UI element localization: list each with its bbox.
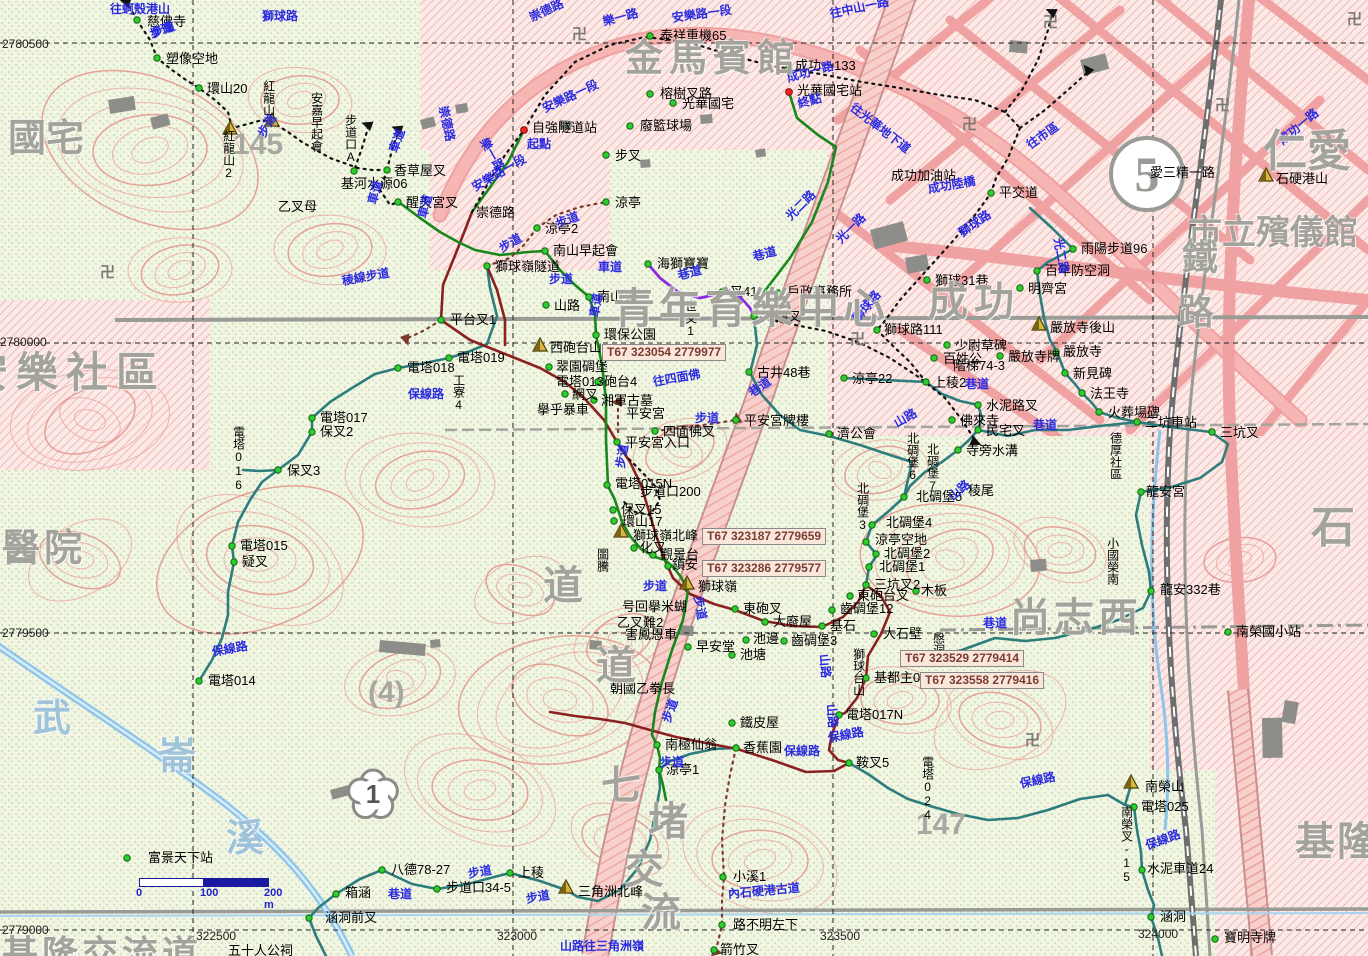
road-label: 樂一路 xyxy=(601,7,639,28)
area-name-label: 交 xyxy=(624,850,664,890)
waypoint-label[interactable]: 涵洞 xyxy=(1160,910,1186,923)
road-label: 巷道 xyxy=(965,378,989,390)
waypoint-label[interactable]: 嚴放寺後山 xyxy=(1050,321,1115,334)
waypoint-label[interactable]: 愛三精一路 xyxy=(1150,166,1215,179)
waypoint-label-vertical[interactable]: 步道口A xyxy=(344,114,357,164)
road-label: 內石硬港古道 xyxy=(727,882,800,900)
waypoint-label[interactable]: 疑叉 xyxy=(242,555,268,568)
road-label: 步道 xyxy=(643,580,667,592)
scale-bar-label: 200 m xyxy=(264,887,282,911)
waypoint-label[interactable]: 嚴放寺 xyxy=(1063,345,1102,358)
waypoint-label[interactable]: 平交道 xyxy=(999,186,1038,199)
road-label: 車道 xyxy=(387,127,406,154)
road-label: 步道 xyxy=(549,273,573,285)
waypoint-label[interactable]: 龍安332巷 xyxy=(1160,583,1221,596)
waypoint-label[interactable]: 網叉 xyxy=(572,388,598,401)
waypoint-label[interactable]: 涵洞前叉 xyxy=(325,911,377,924)
grid-coordinate-label: 2779500 xyxy=(2,627,49,639)
temple-icon: 卍 xyxy=(1043,15,1058,30)
waypoint-label[interactable]: 龍安宮 xyxy=(1146,485,1185,498)
road-label: 步道 xyxy=(692,595,708,621)
waypoint-label-vertical[interactable]: 紅龍山2 xyxy=(222,130,235,180)
waypoint-label[interactable]: 大石壁 xyxy=(883,627,922,640)
waypoint-label-vertical[interactable]: 德厚社區 xyxy=(1109,432,1122,480)
waypoint-label[interactable]: 木板 xyxy=(921,584,947,597)
road-label: 稜線步道 xyxy=(341,267,390,287)
road-label: 安樂路一段 xyxy=(540,78,599,114)
waypoint-label[interactable]: 電塔017 xyxy=(320,411,368,424)
waypoint-label[interactable]: 電塔018 xyxy=(407,361,455,374)
waypoint-label-vertical[interactable]: 安嘉早起會 xyxy=(310,92,323,152)
area-name-label: 青年育樂中心 xyxy=(613,288,889,330)
waypoint-label[interactable]: 自強隧道站 xyxy=(532,121,597,134)
waypoint-label-vertical[interactable]: 北碉堡7 xyxy=(926,443,939,493)
waypoint-label[interactable]: 池塘 xyxy=(740,648,766,661)
waypoint-label[interactable]: 号回擧米蝴 xyxy=(622,600,687,613)
waypoint-label[interactable]: 步叉 xyxy=(615,149,641,162)
waypoint-label[interactable]: 上稜 xyxy=(518,866,544,879)
waypoint-label-vertical[interactable]: 獅球台山 xyxy=(852,648,865,696)
waypoint-label[interactable]: 水泥車道24 xyxy=(1147,862,1213,875)
road-label: 往四面佛 xyxy=(652,368,701,388)
area-name-label: 醫院 xyxy=(2,530,86,568)
waypoint-label[interactable]: 早安堂 xyxy=(696,640,735,653)
waypoint-label[interactable]: 濟公會 xyxy=(837,427,876,440)
waypoint-label[interactable]: 電塔015 xyxy=(240,539,288,552)
waypoint-label[interactable]: 嚴放寺牌 xyxy=(1008,350,1060,363)
road-label: 往蚵殼港山 xyxy=(110,3,170,15)
road-label: 往中山一路 xyxy=(829,0,890,20)
grid-coordinate-label: 322500 xyxy=(196,930,236,942)
area-name-label: 安樂社區 xyxy=(0,352,166,394)
waypoint-label[interactable]: 寶明寺牌 xyxy=(1224,931,1276,944)
waypoint-label[interactable]: 涼亭22 xyxy=(852,372,892,385)
waypoint-label[interactable]: 西砲台山 xyxy=(550,341,602,354)
t67-coordinate-box[interactable]: T67 323054 2779977 xyxy=(602,344,726,361)
road-label: 起點 xyxy=(527,138,551,150)
temple-icon: 卍 xyxy=(100,265,115,280)
waypoint-label[interactable]: 鐵皮屋 xyxy=(740,716,779,729)
area-name-label: 堵 xyxy=(648,802,688,842)
road-label: 崇德路 xyxy=(527,0,565,23)
road-label: 山路 xyxy=(946,478,972,503)
road-label: 巷道 xyxy=(747,375,774,399)
road-label: 步道 xyxy=(256,112,278,139)
scale-bar-label: 100 xyxy=(200,887,218,899)
waypoint-label[interactable]: 富景天下站 xyxy=(148,851,213,864)
waypoint-label[interactable]: 齒碉堡12 xyxy=(840,602,893,615)
waypoint-label[interactable]: 池邊 xyxy=(753,632,779,645)
waypoint-label[interactable]: 北碉堡1 xyxy=(879,560,925,573)
road-label: 保線路 xyxy=(408,388,444,400)
area-name-label: 金馬賓館 xyxy=(625,40,801,78)
waypoint-label[interactable]: 獅球嶺北峰 xyxy=(633,529,698,542)
waypoint-label[interactable]: 涼亭空地 xyxy=(875,533,927,546)
waypoint-label[interactable]: 民宅叉 xyxy=(986,424,1025,437)
waypoint-label[interactable]: 上稜2 xyxy=(933,376,966,389)
waypoint-label[interactable]: 擧乎暴車 xyxy=(537,403,589,416)
waypoint-label[interactable]: 路不明左下 xyxy=(733,918,798,931)
waypoint-label[interactable]: 北碉堡4 xyxy=(886,516,932,529)
waypoint-label[interactable]: 涼亭 xyxy=(615,196,641,209)
area-name-label: 道 xyxy=(596,646,636,686)
road-label: 往市區 xyxy=(1025,120,1061,150)
grid-coordinate-label: 323500 xyxy=(820,930,860,942)
road-label: 車道 xyxy=(588,292,604,318)
road-label: 山路 xyxy=(818,653,832,678)
road-label: 保線路 xyxy=(784,745,820,757)
road-label: 巷道 xyxy=(983,617,1007,629)
waypoint-label-vertical[interactable]: 電塔016 xyxy=(232,426,245,492)
waypoint-label[interactable]: 廢籃球場 xyxy=(640,119,692,132)
road-label: 步道 xyxy=(497,232,524,254)
temple-icon: 卍 xyxy=(962,117,977,132)
road-label: 山路 xyxy=(892,407,919,429)
waypoint-label[interactable]: 五十人公祠 xyxy=(228,944,293,956)
grid-coordinate-label: 324000 xyxy=(1138,928,1178,940)
waypoint-label[interactable]: 百年防空洞 xyxy=(1045,264,1110,277)
waypoint-label[interactable]: 香蕉園 xyxy=(743,741,782,754)
grid-coordinate-label: 2780000 xyxy=(0,336,47,348)
waypoint-label[interactable]: 八德78-27 xyxy=(391,863,450,876)
road-label: 巷道 xyxy=(1033,419,1057,431)
area-name-label: 基隆 xyxy=(1295,822,1368,862)
road-label: 山路 xyxy=(825,703,839,728)
area-name-label: 七 xyxy=(601,766,641,806)
waypoint-label[interactable]: 南榮國小站 xyxy=(1236,625,1301,638)
waypoint-label[interactable]: 水泥路叉 xyxy=(986,399,1038,412)
road-label: 步道 xyxy=(660,756,684,768)
waypoint-label-vertical[interactable]: 北碉堡3 xyxy=(856,482,869,532)
waypoint-label[interactable]: 乙叉母 xyxy=(278,200,317,213)
waypoint-label[interactable]: 翠園碉堡 xyxy=(556,360,608,373)
road-label: 保線路 xyxy=(827,726,865,744)
road-label: 車道 xyxy=(598,261,622,273)
topo-map-canvas[interactable]: 15(4)147145 卍卍卍卍卍卍卍卍慈佛寺塑像空地環山20香草屋叉基河水源0… xyxy=(0,0,1368,956)
waypoint-label-vertical[interactable]: 工寮4 xyxy=(452,374,465,412)
road-label: 巷道 xyxy=(751,245,777,263)
waypoint-label[interactable]: 獅球路111 xyxy=(884,323,943,336)
waypoint-label[interactable]: 法王寺 xyxy=(1090,387,1129,400)
area-name-label: 成功 xyxy=(928,282,1020,322)
temple-icon: 卍 xyxy=(572,27,587,42)
waypoint-label[interactable]: 觀景台 xyxy=(660,548,699,561)
waypoint-label-vertical[interactable]: 電塔024 xyxy=(921,756,934,822)
road-label: 步道 xyxy=(695,412,719,424)
waypoint-label[interactable]: 寺旁水溝 xyxy=(966,444,1018,457)
waypoint-label-vertical[interactable]: 南榮叉-15 xyxy=(1120,806,1133,884)
waypoint-label[interactable]: 大廢屋 xyxy=(773,615,812,628)
waypoint-label[interactable]: 明齊宮 xyxy=(1028,282,1067,295)
road-label: 往光華地下道 xyxy=(848,101,912,155)
road-label: 步道 xyxy=(660,697,679,724)
waypoint-label[interactable]: 南山早起會 xyxy=(553,244,618,257)
waypoint-label[interactable]: 砲台4 xyxy=(604,375,637,388)
waypoint-label-vertical[interactable]: 小國榮南 xyxy=(1106,537,1119,585)
waypoint-label[interactable]: 環山20 xyxy=(207,82,247,95)
waypoint-label[interactable]: 箭竹叉 xyxy=(720,943,759,956)
waypoint-label[interactable]: 平台叉1 xyxy=(450,313,496,326)
road-label: 山路往三角洲嶺 xyxy=(560,940,644,952)
waypoint-label-vertical[interactable]: 紅龍山 xyxy=(262,80,275,116)
waypoint-label[interactable]: 害鳳恩車 xyxy=(625,628,677,641)
road-label: 獅球路 xyxy=(957,208,993,238)
waypoint-label[interactable]: 光華國宅 xyxy=(682,97,734,110)
waypoint-label[interactable]: 平安宮入口 xyxy=(625,436,690,449)
waypoint-label-vertical[interactable]: 北碉堡6 xyxy=(906,432,919,482)
waypoint-label[interactable]: 保叉3 xyxy=(287,464,320,477)
waypoint-label[interactable]: 崇德路 xyxy=(476,206,515,219)
waypoint-label[interactable]: 小溪1 xyxy=(733,870,766,883)
road-label: 獅球路 xyxy=(262,10,298,22)
waypoint-label[interactable]: 鞍叉5 xyxy=(856,756,889,769)
waypoint-label[interactable]: 南極仙翁 xyxy=(665,738,717,751)
temple-icon: 卍 xyxy=(1215,98,1230,113)
area-name-label: 路 xyxy=(1178,294,1214,330)
temple-icon: 卍 xyxy=(850,332,865,347)
t67-coordinate-box[interactable]: T67 323187 2779659 xyxy=(702,528,826,545)
waypoint-label[interactable]: 平安宮 xyxy=(626,407,665,420)
grid-coordinate-label: 2779000 xyxy=(2,924,49,936)
waypoint-label[interactable]: 電塔014 xyxy=(208,674,256,687)
road-label: 步道 xyxy=(467,864,493,880)
area-name-label: 仁愛 xyxy=(1263,130,1351,174)
scale-bar-label: 0 xyxy=(136,887,142,899)
grid-coordinate-label: 323000 xyxy=(497,930,537,942)
road-label: 安樂路一段 xyxy=(671,4,732,24)
waypoint-label[interactable]: 電塔017N xyxy=(846,708,903,721)
area-name-label: 國宅 xyxy=(8,120,84,158)
waypoint-label[interactable]: 電塔025 xyxy=(1141,800,1189,813)
area-name-label: 基隆交流道 xyxy=(2,936,202,956)
map-scale-bar: 0100200 m xyxy=(139,878,267,900)
waypoint-label[interactable]: 齒碉堡3 xyxy=(791,634,837,647)
area-name-label: 鐵 xyxy=(1182,240,1218,276)
waypoint-label[interactable]: 步道口34-5 xyxy=(446,881,511,894)
road-label: 保線路 xyxy=(1144,828,1182,852)
temple-icon: 卍 xyxy=(1025,733,1040,748)
area-name-label: 道 xyxy=(543,566,583,606)
t67-coordinate-box[interactable]: T67 323558 2779416 xyxy=(920,672,1044,689)
area-name-label: 武 xyxy=(33,700,71,738)
road-label: 崇德路 xyxy=(437,105,456,143)
road-label: 保線路 xyxy=(1019,771,1057,790)
waypoint-label[interactable]: 塑像空地 xyxy=(166,52,218,65)
waypoint-label[interactable]: 獅球嶺 xyxy=(698,580,737,593)
waypoint-label[interactable]: 階梯74-3 xyxy=(953,359,1005,372)
waypoint-label[interactable]: 保叉2 xyxy=(320,425,353,438)
waypoint-label[interactable]: 新見碑 xyxy=(1073,367,1112,380)
road-label: 保線路 xyxy=(211,640,249,658)
road-label: 光一路 xyxy=(834,211,868,245)
waypoint-label[interactable]: 三坑叉 xyxy=(1220,426,1259,439)
waypoint-label[interactable]: 三坑車站 xyxy=(1145,416,1197,429)
waypoint-label-vertical[interactable]: 圖騰 xyxy=(596,548,609,572)
road-label: 步道 xyxy=(614,443,630,469)
t67-coordinate-box[interactable]: T67 323529 2779414 xyxy=(900,650,1024,667)
grid-coordinate-label: 2780500 xyxy=(2,38,49,50)
waypoint-label[interactable]: 雨陽步道96 xyxy=(1081,242,1147,255)
scale-bar-segment-white xyxy=(139,878,205,887)
waypoint-label[interactable]: 平安宮牌樓 xyxy=(744,414,809,427)
waypoint-label[interactable]: 電塔019 xyxy=(457,351,505,364)
area-name-label: 尚志西 xyxy=(1010,598,1142,638)
map-label-layer: 卍卍卍卍卍卍卍卍慈佛寺塑像空地環山20香草屋叉基河水源06醒天宮叉崇德路泰祥重機… xyxy=(0,0,1368,956)
temple-icon: 卍 xyxy=(1347,12,1362,27)
area-name-label: 崙 xyxy=(158,738,196,776)
waypoint-label[interactable]: 山路 xyxy=(554,299,580,312)
waypoint-label[interactable]: 環山17 xyxy=(622,515,662,528)
road-label: 步道 xyxy=(525,889,551,905)
waypoint-label[interactable]: 基石 xyxy=(830,619,856,632)
scale-bar-segment-filled xyxy=(203,878,269,887)
road-label: 光二路 xyxy=(784,188,818,222)
area-name-label: 石 xyxy=(1311,506,1355,550)
area-name-label: 流 xyxy=(641,893,681,933)
waypoint-label[interactable]: 箱涵 xyxy=(345,886,371,899)
t67-coordinate-box[interactable]: T67 323286 2779577 xyxy=(702,560,826,577)
waypoint-label[interactable]: 南榮山 xyxy=(1145,780,1184,793)
road-label: 巷道 xyxy=(388,888,412,900)
waypoint-label[interactable]: 電塔015N xyxy=(615,477,672,490)
area-name-label: 溪 xyxy=(226,820,264,858)
